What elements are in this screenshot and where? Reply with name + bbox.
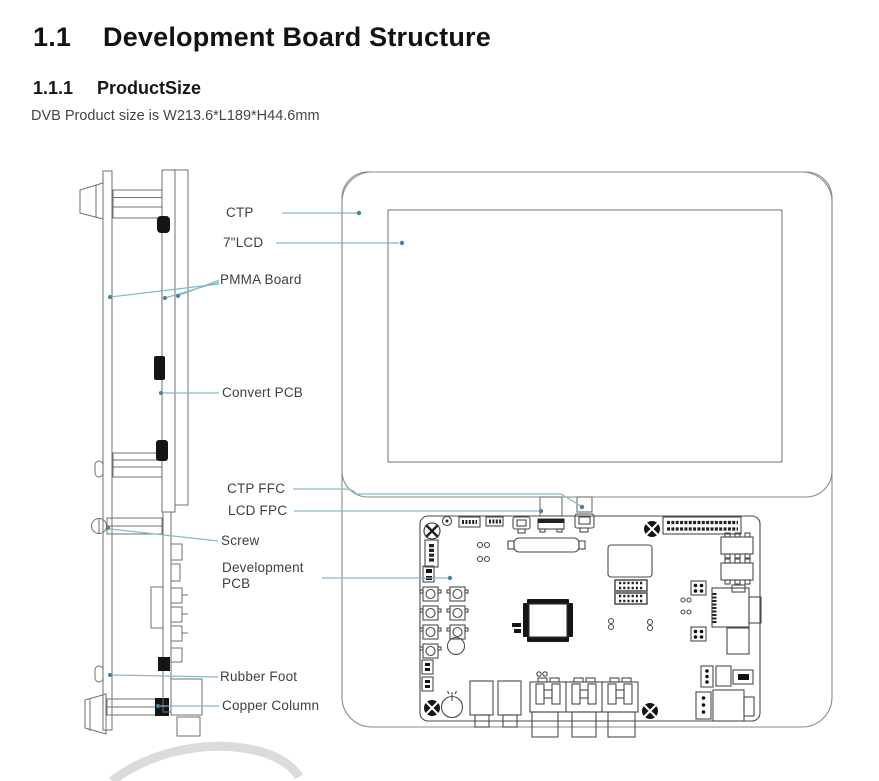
label-development-pcb: Development PCB — [222, 560, 330, 592]
label-lcd: 7"LCD — [223, 235, 263, 251]
lcd-ffc-connector — [538, 519, 564, 532]
leader-lines — [106, 211, 584, 708]
memory-chip — [608, 545, 652, 577]
label-rubber-foot: Rubber Foot — [220, 669, 297, 685]
usb-port-block — [530, 678, 638, 737]
micro-usb-2 — [575, 514, 594, 532]
screw-bottom-right — [642, 703, 658, 719]
round-pad — [448, 638, 465, 655]
screw-top-right — [644, 521, 660, 537]
front-view — [342, 172, 832, 727]
side-view — [80, 170, 202, 736]
label-pmma-board: PMMA Board — [220, 272, 302, 288]
gpio-pin-header — [663, 517, 741, 534]
jumper-block-1 — [691, 581, 706, 595]
wifi-module — [615, 580, 647, 604]
board-structure-diagram — [0, 0, 879, 781]
label-copper-column: Copper Column — [222, 698, 319, 714]
tactile-buttons-col2 — [447, 587, 468, 639]
leader-dots — [106, 211, 584, 708]
screw-bottom-left — [424, 700, 440, 716]
power-connector — [696, 690, 754, 721]
label-convert-pcb: Convert PCB — [222, 385, 303, 401]
label-lcd-fpc: LCD FPC — [228, 503, 287, 519]
usb-otg-connector — [727, 628, 749, 654]
sd-card-slot — [712, 585, 761, 627]
power-button — [442, 691, 463, 718]
tactile-buttons-col1 — [420, 587, 441, 658]
main-processor-chip — [512, 599, 573, 642]
battery-connector — [508, 538, 585, 552]
audio-jack-right-1 — [721, 533, 753, 558]
audio-jack-right-2 — [721, 559, 753, 584]
micro-usb-1 — [513, 517, 530, 533]
audio-jack-bottom-1 — [470, 681, 493, 727]
screw-top-left — [424, 523, 440, 539]
jumper-block-2 — [691, 627, 706, 641]
dev-pcb-connector — [423, 566, 434, 582]
label-screw: Screw — [221, 533, 260, 549]
document-page: 1.1 Development Board Structure 1.1.1 Pr… — [0, 0, 879, 781]
label-ctp: CTP — [226, 205, 254, 221]
label-ctp-ffc: CTP FFC — [227, 481, 285, 497]
watermark-swoosh — [112, 746, 299, 781]
development-pcb-view — [420, 514, 761, 737]
audio-jack-bottom-2 — [498, 681, 521, 727]
aux-connectors — [701, 666, 753, 687]
